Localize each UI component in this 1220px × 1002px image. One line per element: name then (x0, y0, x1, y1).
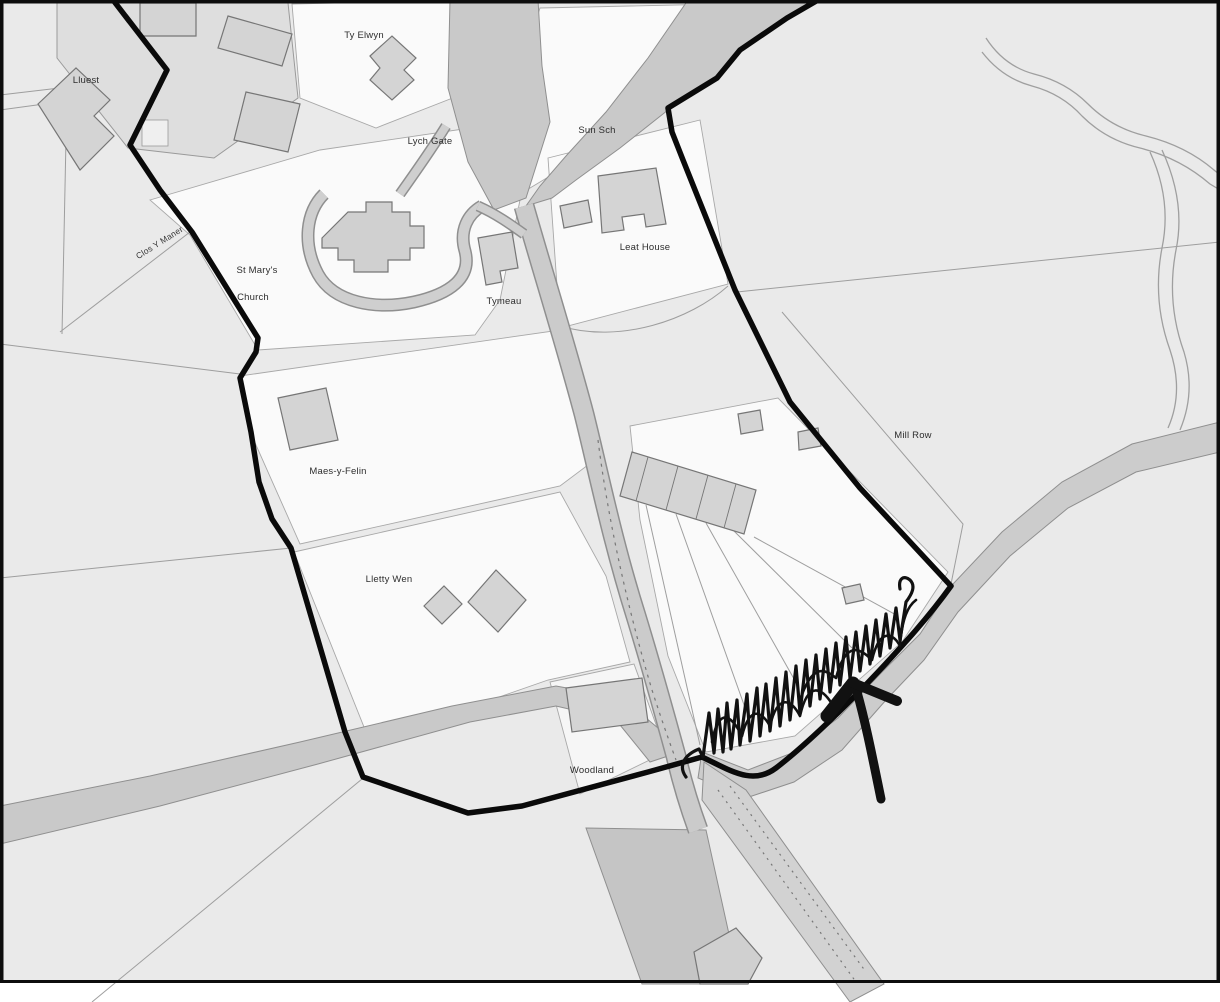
map-label-lych-gate: Lych Gate (408, 136, 453, 147)
map-label-mill-row: Mill Row (894, 430, 932, 441)
building-small-1 (738, 410, 763, 434)
village-map: Lluest Ty Elwyn Lych Gate Sun Sch Leat H… (0, 0, 1220, 1002)
map-label-sun-sch: Sun Sch (578, 125, 615, 136)
building-small-3 (842, 584, 864, 604)
map-label-lluest: Lluest (73, 75, 100, 86)
building-estate-a (140, 3, 196, 36)
map-label-woodland: Woodland (570, 765, 614, 776)
map-label-st-marys: St Mary's (236, 265, 277, 276)
map-canvas: Lluest Ty Elwyn Lych Gate Sun Sch Leat H… (0, 0, 1220, 1002)
map-label-maes-y-felin: Maes-y-Felin (309, 466, 366, 477)
map-label-lletty-wen: Lletty Wen (366, 574, 413, 585)
map-label-ty-elwyn: Ty Elwyn (344, 30, 384, 41)
building-woodland (566, 678, 648, 732)
map-label-leat-house: Leat House (620, 242, 671, 253)
map-label-church: Church (237, 292, 269, 303)
map-label-tymeau: Tymeau (487, 296, 522, 307)
